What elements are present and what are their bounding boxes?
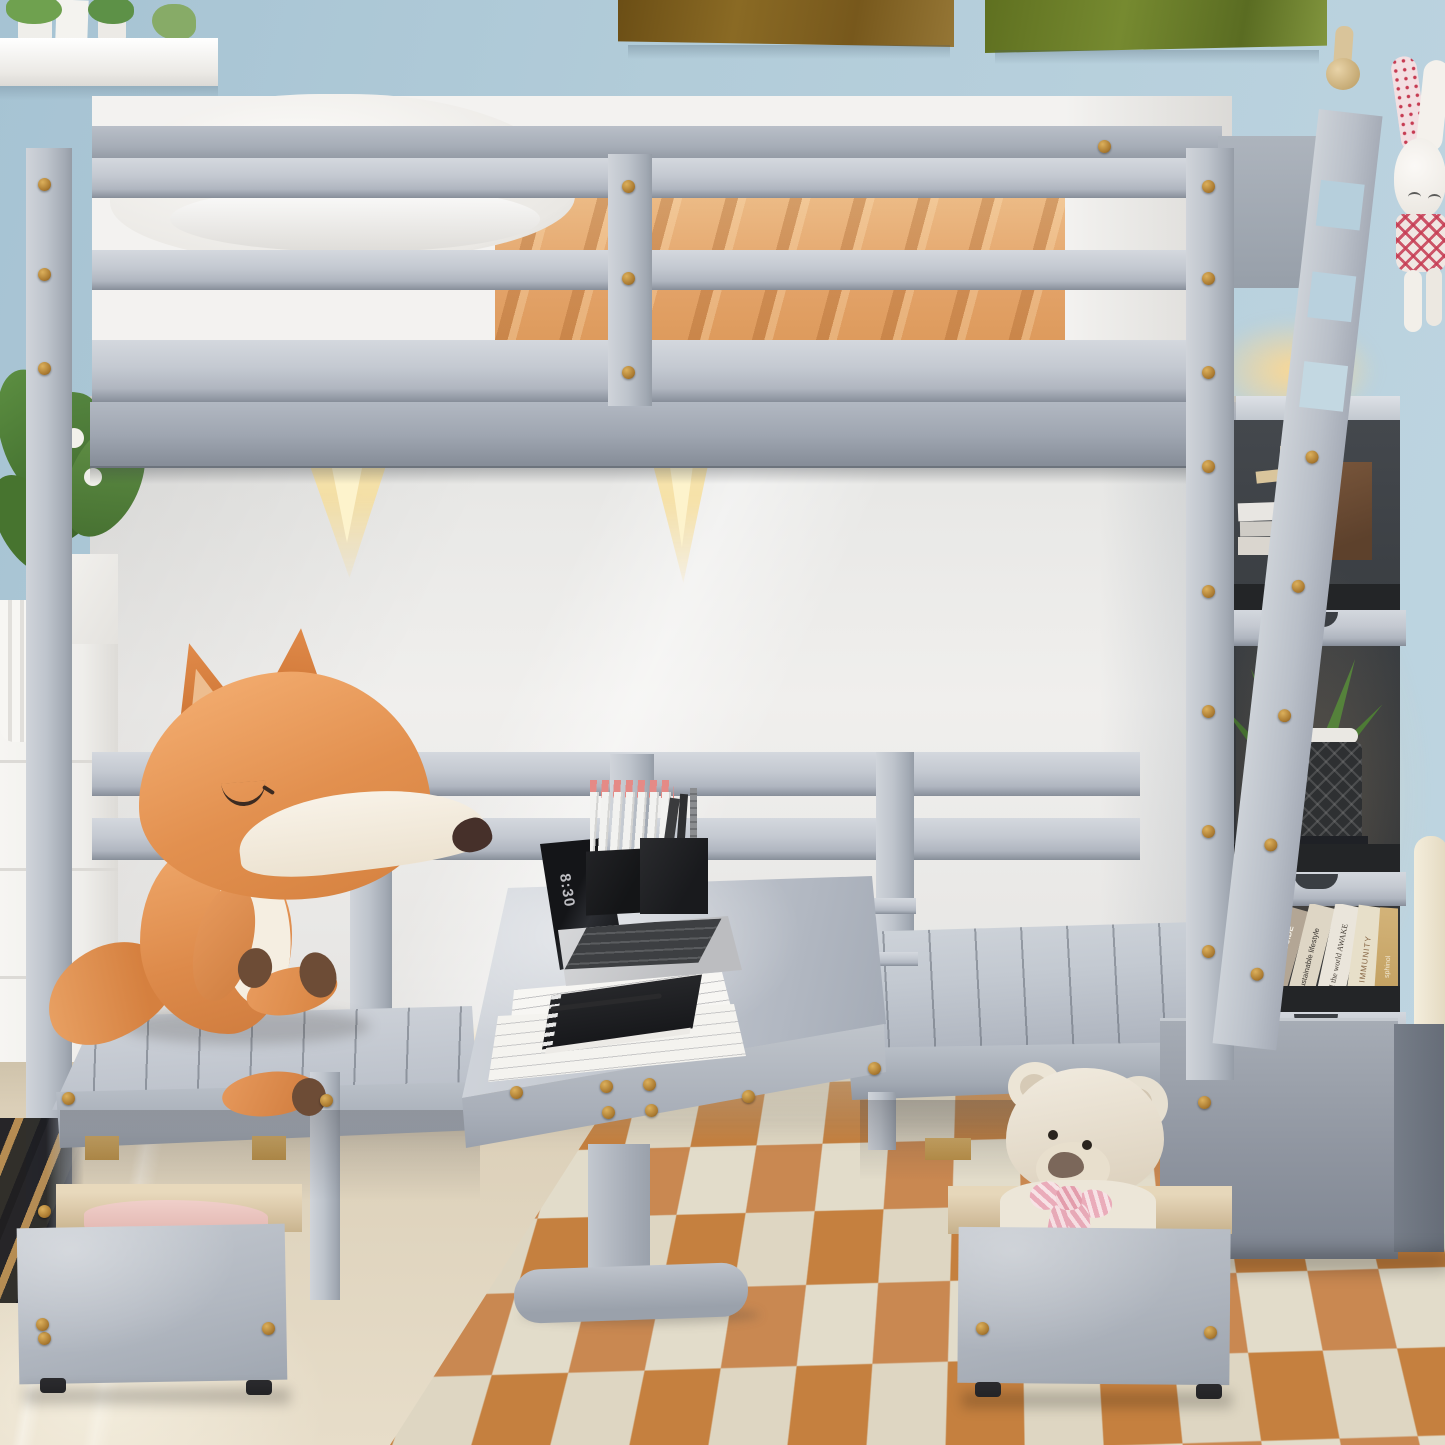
floating-shelf-board bbox=[0, 38, 218, 86]
screw-cap bbox=[622, 272, 635, 285]
guard-rail-bottom bbox=[92, 340, 1222, 402]
screw-cap bbox=[602, 1106, 615, 1119]
screw-cap bbox=[1202, 945, 1215, 958]
screw-cap bbox=[38, 1332, 51, 1345]
painting-green bbox=[985, 0, 1327, 53]
screw-cap bbox=[38, 1205, 51, 1218]
bunny-leg bbox=[1426, 268, 1442, 326]
bunny-dress bbox=[1396, 214, 1445, 272]
screw-cap bbox=[1202, 272, 1215, 285]
bench-slat-seams bbox=[845, 918, 1207, 1064]
painting-brown-shadow bbox=[628, 45, 950, 59]
screw-cap bbox=[38, 268, 51, 281]
teddy-eye bbox=[1048, 1130, 1058, 1140]
screw-cap bbox=[645, 1104, 658, 1117]
screw-cap bbox=[1305, 450, 1319, 464]
drawer-front bbox=[957, 1227, 1230, 1385]
screw-cap bbox=[262, 1322, 275, 1335]
screw-cap bbox=[1202, 705, 1215, 718]
screw-cap bbox=[1202, 825, 1215, 838]
screw-cap bbox=[38, 178, 51, 191]
wall-peg-knob bbox=[1326, 58, 1360, 90]
bunny-eye-closed bbox=[1428, 194, 1441, 204]
painting-brown bbox=[618, 0, 954, 47]
screw-cap bbox=[510, 1086, 523, 1099]
screw-cap bbox=[1250, 967, 1264, 981]
teddy-bow-knot bbox=[1056, 1186, 1082, 1210]
screw-cap bbox=[622, 180, 635, 193]
bedroom-scene: THIS IS A GOOD GUIDE for a sustainable l… bbox=[0, 0, 1445, 1445]
screw-cap bbox=[976, 1322, 989, 1335]
screw-cap bbox=[742, 1090, 755, 1103]
handrail-slot bbox=[1307, 271, 1356, 322]
screw-cap bbox=[622, 366, 635, 379]
platform-under-shadow bbox=[90, 466, 1238, 484]
drawer-front bbox=[17, 1224, 288, 1385]
screw-cap bbox=[1202, 180, 1215, 193]
painting-green-shadow bbox=[995, 50, 1319, 64]
screw-cap bbox=[62, 1092, 75, 1105]
screw-cap bbox=[1198, 1096, 1211, 1109]
screw-cap bbox=[600, 1080, 613, 1093]
right-bench-seat bbox=[845, 918, 1207, 1064]
drawer-floor-shadow bbox=[24, 1388, 290, 1404]
screw-cap bbox=[1202, 460, 1215, 473]
handrail-slot bbox=[1299, 361, 1348, 412]
screw-cap bbox=[1291, 579, 1305, 593]
screw-cap bbox=[38, 362, 51, 375]
bunny-leg bbox=[1404, 270, 1422, 332]
drawer-floor-shadow bbox=[962, 1392, 1232, 1408]
screw-cap bbox=[1204, 1326, 1217, 1339]
screw-cap bbox=[643, 1078, 656, 1091]
screw-cap bbox=[868, 1062, 881, 1075]
handrail-slot bbox=[1316, 180, 1365, 231]
guard-rail-mid bbox=[92, 250, 1222, 290]
pen-holder bbox=[586, 848, 646, 915]
bunny-eye-closed bbox=[1408, 192, 1421, 202]
screw-cap bbox=[1264, 838, 1278, 852]
pen-holder bbox=[640, 838, 708, 914]
guard-rail-top bbox=[92, 158, 1222, 198]
teddy-eye bbox=[1082, 1140, 1092, 1150]
platform-beam bbox=[90, 402, 1238, 468]
screw-cap bbox=[1277, 708, 1291, 722]
laptop-clock-text: 8:30 bbox=[556, 872, 578, 908]
screw-cap bbox=[1202, 585, 1215, 598]
screw-cap bbox=[320, 1094, 333, 1107]
desk-foot bbox=[513, 1262, 749, 1324]
shelf-plant-leaves bbox=[152, 4, 196, 40]
stair-cabinet-side bbox=[1394, 1024, 1444, 1252]
bunny-head bbox=[1394, 138, 1445, 218]
screw-cap bbox=[1202, 366, 1215, 379]
screw-cap bbox=[36, 1318, 49, 1331]
screw-cap bbox=[1098, 140, 1111, 153]
